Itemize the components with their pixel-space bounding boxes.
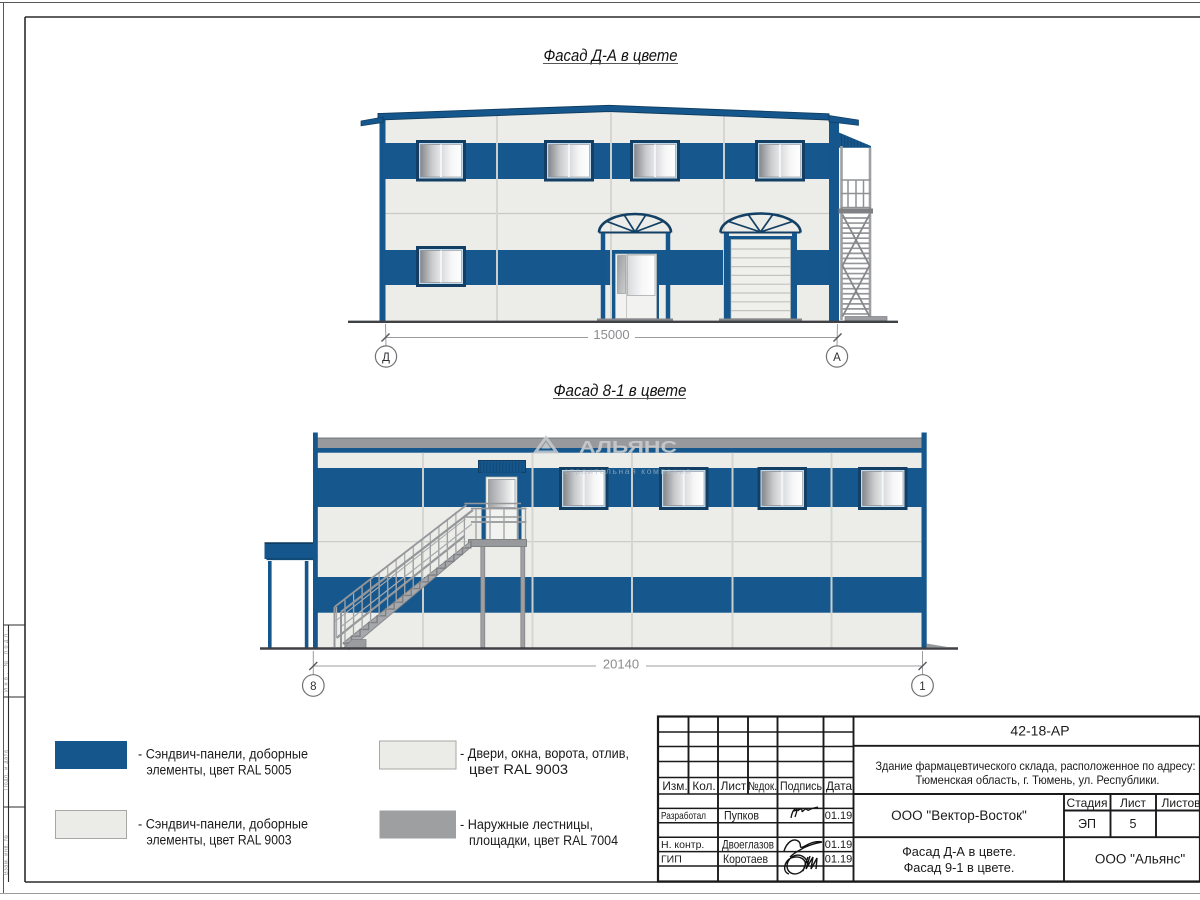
svg-text:5: 5 bbox=[1130, 817, 1137, 831]
svg-text:№док.: №док. bbox=[748, 779, 777, 793]
svg-text:А: А bbox=[833, 352, 841, 364]
svg-text:Взам. инв. №: Взам. инв. № bbox=[4, 835, 10, 875]
svg-text:1: 1 bbox=[919, 681, 925, 693]
svg-text:8: 8 bbox=[310, 681, 316, 693]
svg-text:строительная компания: строительная компания bbox=[564, 466, 692, 476]
svg-text:Д: Д bbox=[382, 352, 390, 364]
svg-text:Фасад Д-А в цвете: Фасад Д-А в цвете bbox=[544, 47, 678, 65]
svg-text:Подп. и дата: Подп. и дата bbox=[4, 749, 10, 790]
svg-text:01.19: 01.19 bbox=[825, 839, 853, 851]
svg-text:Подпись: Подпись bbox=[780, 779, 822, 793]
svg-text:Тюменская область, г. Тюмень,: Тюменская область, г. Тюмень, ул. Респуб… bbox=[916, 773, 1160, 787]
svg-text:элементы, цвет RAL 9003: элементы, цвет RAL 9003 bbox=[147, 833, 292, 849]
svg-text:Лист: Лист bbox=[721, 779, 747, 793]
svg-text:Здание фармацевтического склад: Здание фармацевтического склада, располо… bbox=[876, 759, 1196, 773]
svg-text:Стадия: Стадия bbox=[1067, 796, 1108, 810]
svg-text:- Сэндвич-панели, доборные: - Сэндвич-панели, доборные bbox=[138, 817, 308, 833]
svg-text:- Двери, окна, ворота, отлив,: - Двери, окна, ворота, отлив, bbox=[460, 746, 629, 762]
svg-text:15000: 15000 bbox=[593, 327, 629, 342]
svg-text:Пупков: Пупков bbox=[724, 809, 759, 823]
svg-text:Разработал: Разработал bbox=[661, 810, 706, 822]
svg-text:Двоеглазов: Двоеглазов bbox=[722, 838, 774, 852]
svg-text:42-18-АР: 42-18-АР bbox=[1010, 723, 1069, 739]
svg-text:Кол.: Кол. bbox=[692, 779, 715, 793]
svg-text:Фасад Д-А в цвете.: Фасад Д-А в цвете. bbox=[902, 844, 1016, 859]
svg-text:- Сэндвич-панели, доборные: - Сэндвич-панели, доборные bbox=[138, 747, 308, 763]
svg-text:- Наружные лестницы,: - Наружные лестницы, bbox=[460, 817, 593, 833]
svg-text:Лист: Лист bbox=[1120, 796, 1147, 810]
svg-text:Дата: Дата bbox=[826, 779, 853, 793]
svg-text:ООО "Альянс": ООО "Альянс" bbox=[1095, 852, 1185, 867]
svg-text:площадки, цвет RAL 7004: площадки, цвет RAL 7004 bbox=[469, 833, 618, 849]
svg-text:Н. контр.: Н. контр. bbox=[661, 839, 704, 851]
svg-text:ЭП: ЭП bbox=[1078, 817, 1096, 831]
svg-text:20140: 20140 bbox=[603, 656, 639, 671]
svg-text:ООО "Вектор-Восток": ООО "Вектор-Восток" bbox=[891, 808, 1027, 823]
svg-text:цвет RAL 9003: цвет RAL 9003 bbox=[469, 762, 568, 778]
svg-text:01.19: 01.19 bbox=[825, 810, 853, 822]
svg-text:элементы, цвет RAL 5005: элементы, цвет RAL 5005 bbox=[147, 763, 292, 779]
svg-text:АЛЬЯНС: АЛЬЯНС bbox=[579, 438, 677, 457]
svg-text:Фасад 8-1 в цвете: Фасад 8-1 в цвете bbox=[554, 382, 687, 400]
svg-text:Коротаев: Коротаев bbox=[723, 852, 768, 866]
svg-text:01.19: 01.19 bbox=[825, 854, 853, 866]
svg-text:Листов: Листов bbox=[1162, 796, 1200, 810]
svg-text:Фасад 9-1 в цвете.: Фасад 9-1 в цвете. bbox=[904, 860, 1015, 875]
svg-text:ГИП: ГИП bbox=[661, 854, 682, 866]
svg-text:Изм.: Изм. bbox=[662, 779, 687, 793]
